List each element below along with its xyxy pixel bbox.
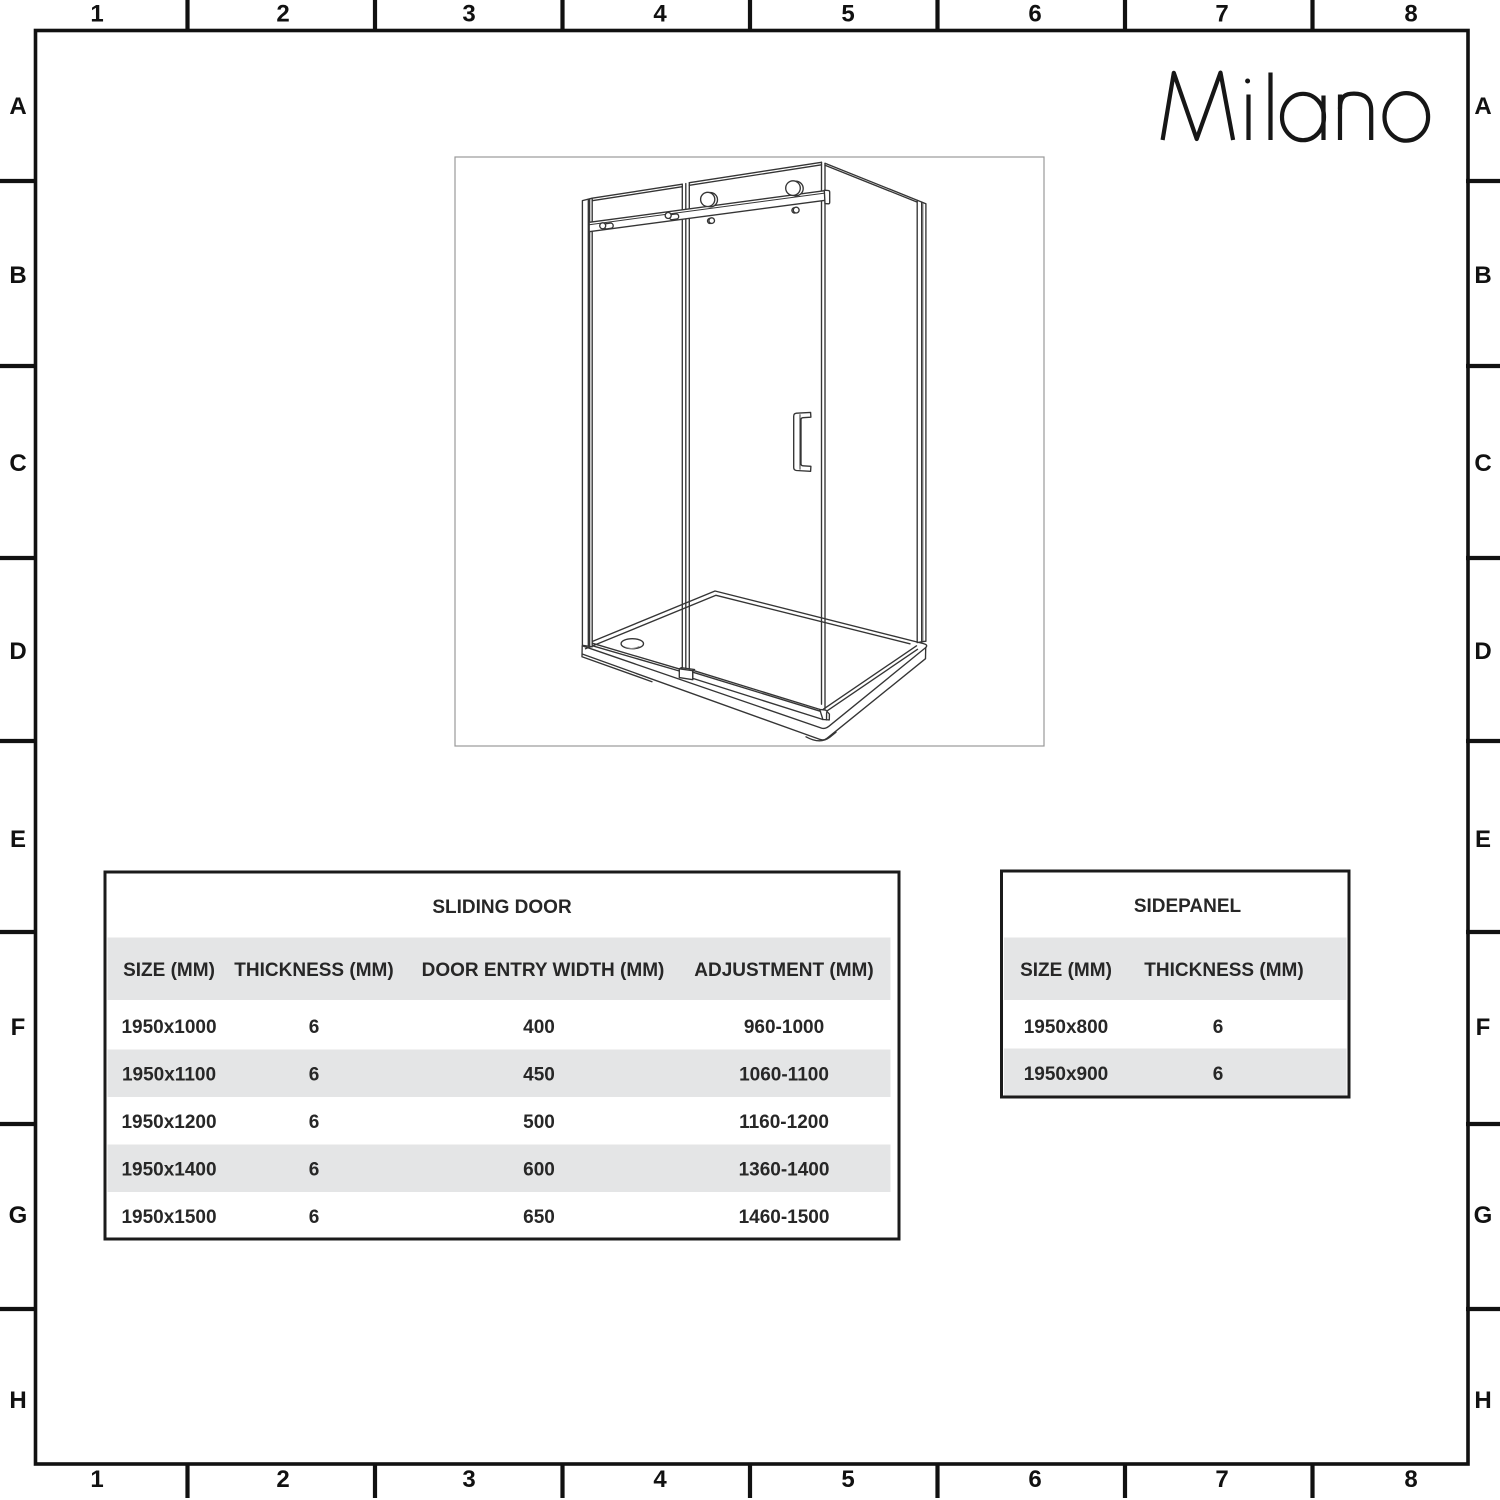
svg-text:1160-1200: 1160-1200 xyxy=(739,1112,829,1133)
svg-text:3: 3 xyxy=(462,1,475,28)
svg-text:6: 6 xyxy=(309,1017,320,1038)
svg-text:6: 6 xyxy=(309,1160,320,1181)
svg-text:1: 1 xyxy=(90,1466,103,1493)
svg-text:960-1000: 960-1000 xyxy=(744,1017,824,1038)
svg-text:5: 5 xyxy=(841,1466,854,1493)
svg-text:DOOR ENTRY WIDTH (MM): DOOR ENTRY WIDTH (MM) xyxy=(422,960,665,981)
svg-text:1460-1500: 1460-1500 xyxy=(739,1207,830,1228)
svg-text:THICKNESS (MM): THICKNESS (MM) xyxy=(1144,960,1303,981)
svg-text:F: F xyxy=(1476,1014,1491,1041)
svg-text:E: E xyxy=(1475,826,1491,853)
svg-text:ADJUSTMENT (MM): ADJUSTMENT (MM) xyxy=(694,960,873,981)
svg-text:SIZE (MM): SIZE (MM) xyxy=(1020,960,1112,981)
svg-text:E: E xyxy=(10,826,26,853)
svg-text:8: 8 xyxy=(1404,1466,1417,1493)
svg-text:400: 400 xyxy=(523,1017,555,1038)
svg-text:B: B xyxy=(9,262,26,289)
svg-text:F: F xyxy=(11,1014,26,1041)
svg-text:SIDEPANEL: SIDEPANEL xyxy=(1134,896,1242,917)
svg-text:C: C xyxy=(9,450,26,477)
svg-text:6: 6 xyxy=(1028,1466,1041,1493)
svg-text:5: 5 xyxy=(841,1,854,28)
svg-text:6: 6 xyxy=(309,1207,320,1228)
svg-text:6: 6 xyxy=(309,1112,320,1133)
svg-text:7: 7 xyxy=(1215,1466,1228,1493)
svg-text:6: 6 xyxy=(1213,1064,1224,1085)
svg-text:A: A xyxy=(9,93,26,120)
svg-text:1950x1400: 1950x1400 xyxy=(121,1160,216,1181)
svg-text:THICKNESS (MM): THICKNESS (MM) xyxy=(234,960,393,981)
svg-text:6: 6 xyxy=(1213,1017,1224,1038)
svg-text:2: 2 xyxy=(276,1466,289,1493)
svg-text:6: 6 xyxy=(309,1065,320,1086)
svg-text:1950x900: 1950x900 xyxy=(1024,1064,1109,1085)
svg-text:1950x1100: 1950x1100 xyxy=(122,1065,216,1086)
svg-text:2: 2 xyxy=(276,1,289,28)
svg-text:600: 600 xyxy=(523,1160,555,1181)
svg-text:SIZE (MM): SIZE (MM) xyxy=(123,960,215,981)
svg-text:G: G xyxy=(9,1202,28,1229)
svg-text:1060-1100: 1060-1100 xyxy=(739,1065,829,1086)
svg-text:H: H xyxy=(9,1387,26,1414)
svg-text:G: G xyxy=(1474,1202,1493,1229)
svg-text:650: 650 xyxy=(523,1207,555,1228)
svg-text:1: 1 xyxy=(90,1,103,28)
svg-text:D: D xyxy=(9,638,26,665)
svg-text:B: B xyxy=(1474,262,1491,289)
svg-text:1950x1000: 1950x1000 xyxy=(121,1017,216,1038)
svg-text:6: 6 xyxy=(1028,1,1041,28)
svg-text:450: 450 xyxy=(523,1065,555,1086)
svg-text:1950x1200: 1950x1200 xyxy=(121,1112,216,1133)
svg-text:C: C xyxy=(1474,450,1491,477)
svg-text:1360-1400: 1360-1400 xyxy=(739,1160,830,1181)
svg-text:4: 4 xyxy=(653,1,667,28)
svg-text:3: 3 xyxy=(462,1466,475,1493)
svg-text:500: 500 xyxy=(523,1112,555,1133)
svg-text:D: D xyxy=(1474,638,1491,665)
svg-text:A: A xyxy=(1474,93,1491,120)
svg-text:H: H xyxy=(1474,1387,1491,1414)
svg-text:8: 8 xyxy=(1404,1,1417,28)
svg-text:1950x1500: 1950x1500 xyxy=(121,1207,216,1228)
svg-text:SLIDING DOOR: SLIDING DOOR xyxy=(432,897,572,918)
svg-text:7: 7 xyxy=(1215,1,1228,28)
svg-text:1950x800: 1950x800 xyxy=(1024,1017,1109,1038)
svg-text:4: 4 xyxy=(653,1466,667,1493)
